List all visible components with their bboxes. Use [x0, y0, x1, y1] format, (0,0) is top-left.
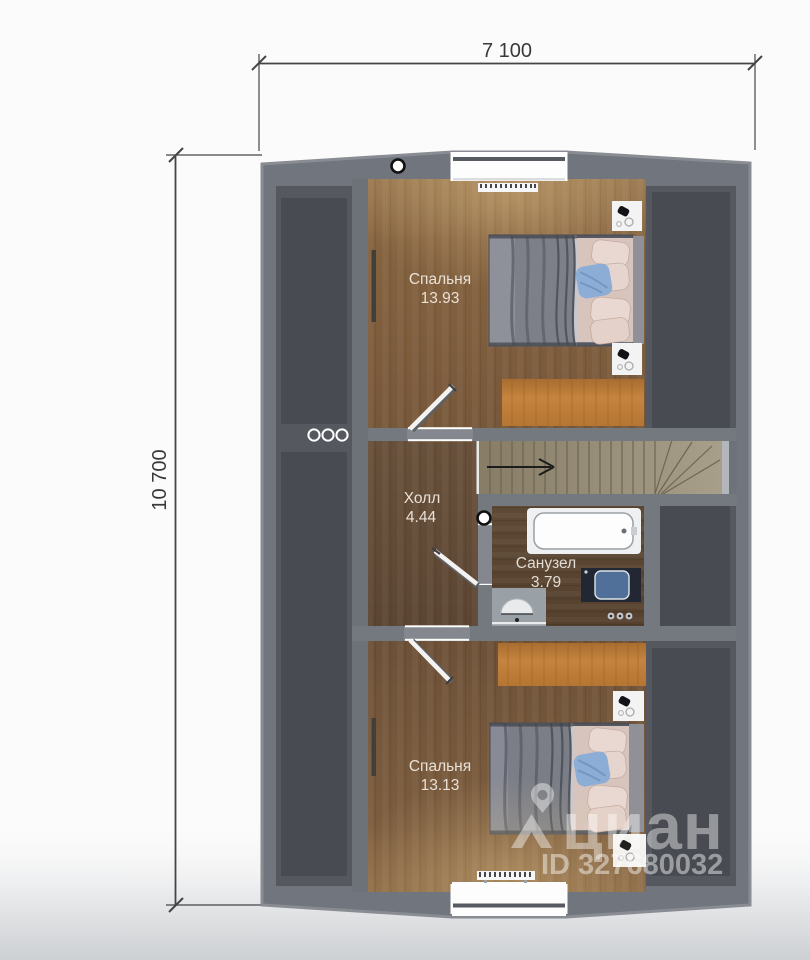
svg-text:10 700: 10 700: [149, 449, 171, 510]
svg-text:ID 327680032: ID 327680032: [541, 849, 723, 881]
svg-text:13.93: 13.93: [421, 290, 460, 307]
svg-text:4.44: 4.44: [406, 509, 437, 526]
svg-text:Спальня: Спальня: [409, 758, 471, 775]
svg-text:Спальня: Спальня: [409, 271, 471, 288]
svg-text:7 100: 7 100: [482, 40, 532, 62]
svg-text:Холл: Холл: [404, 490, 441, 507]
svg-text:Санузел: Санузел: [516, 555, 576, 572]
